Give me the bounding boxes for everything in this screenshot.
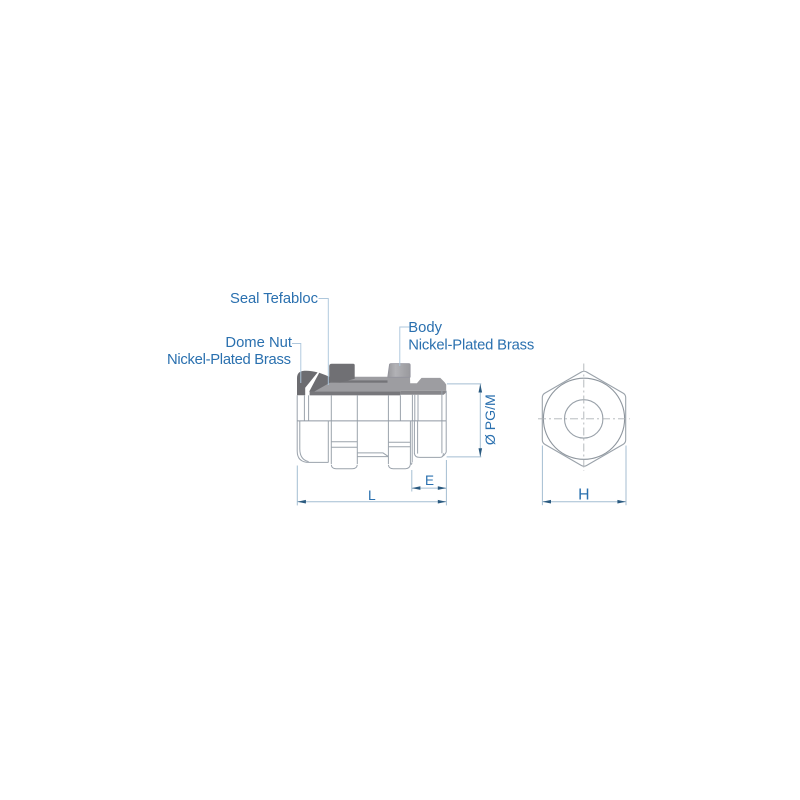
svg-text:Seal Tefabloc: Seal Tefabloc [230,291,319,307]
svg-text:L: L [368,488,376,503]
svg-text:Ø PG/M: Ø PG/M [482,394,498,445]
svg-text:Nickel-Plated Brass: Nickel-Plated Brass [167,352,291,368]
svg-text:H: H [578,487,589,504]
svg-text:Nickel-Plated Brass: Nickel-Plated Brass [408,337,534,353]
svg-text:Dome Nut: Dome Nut [225,335,292,351]
svg-text:Body: Body [408,320,442,336]
svg-text:E: E [425,473,434,488]
